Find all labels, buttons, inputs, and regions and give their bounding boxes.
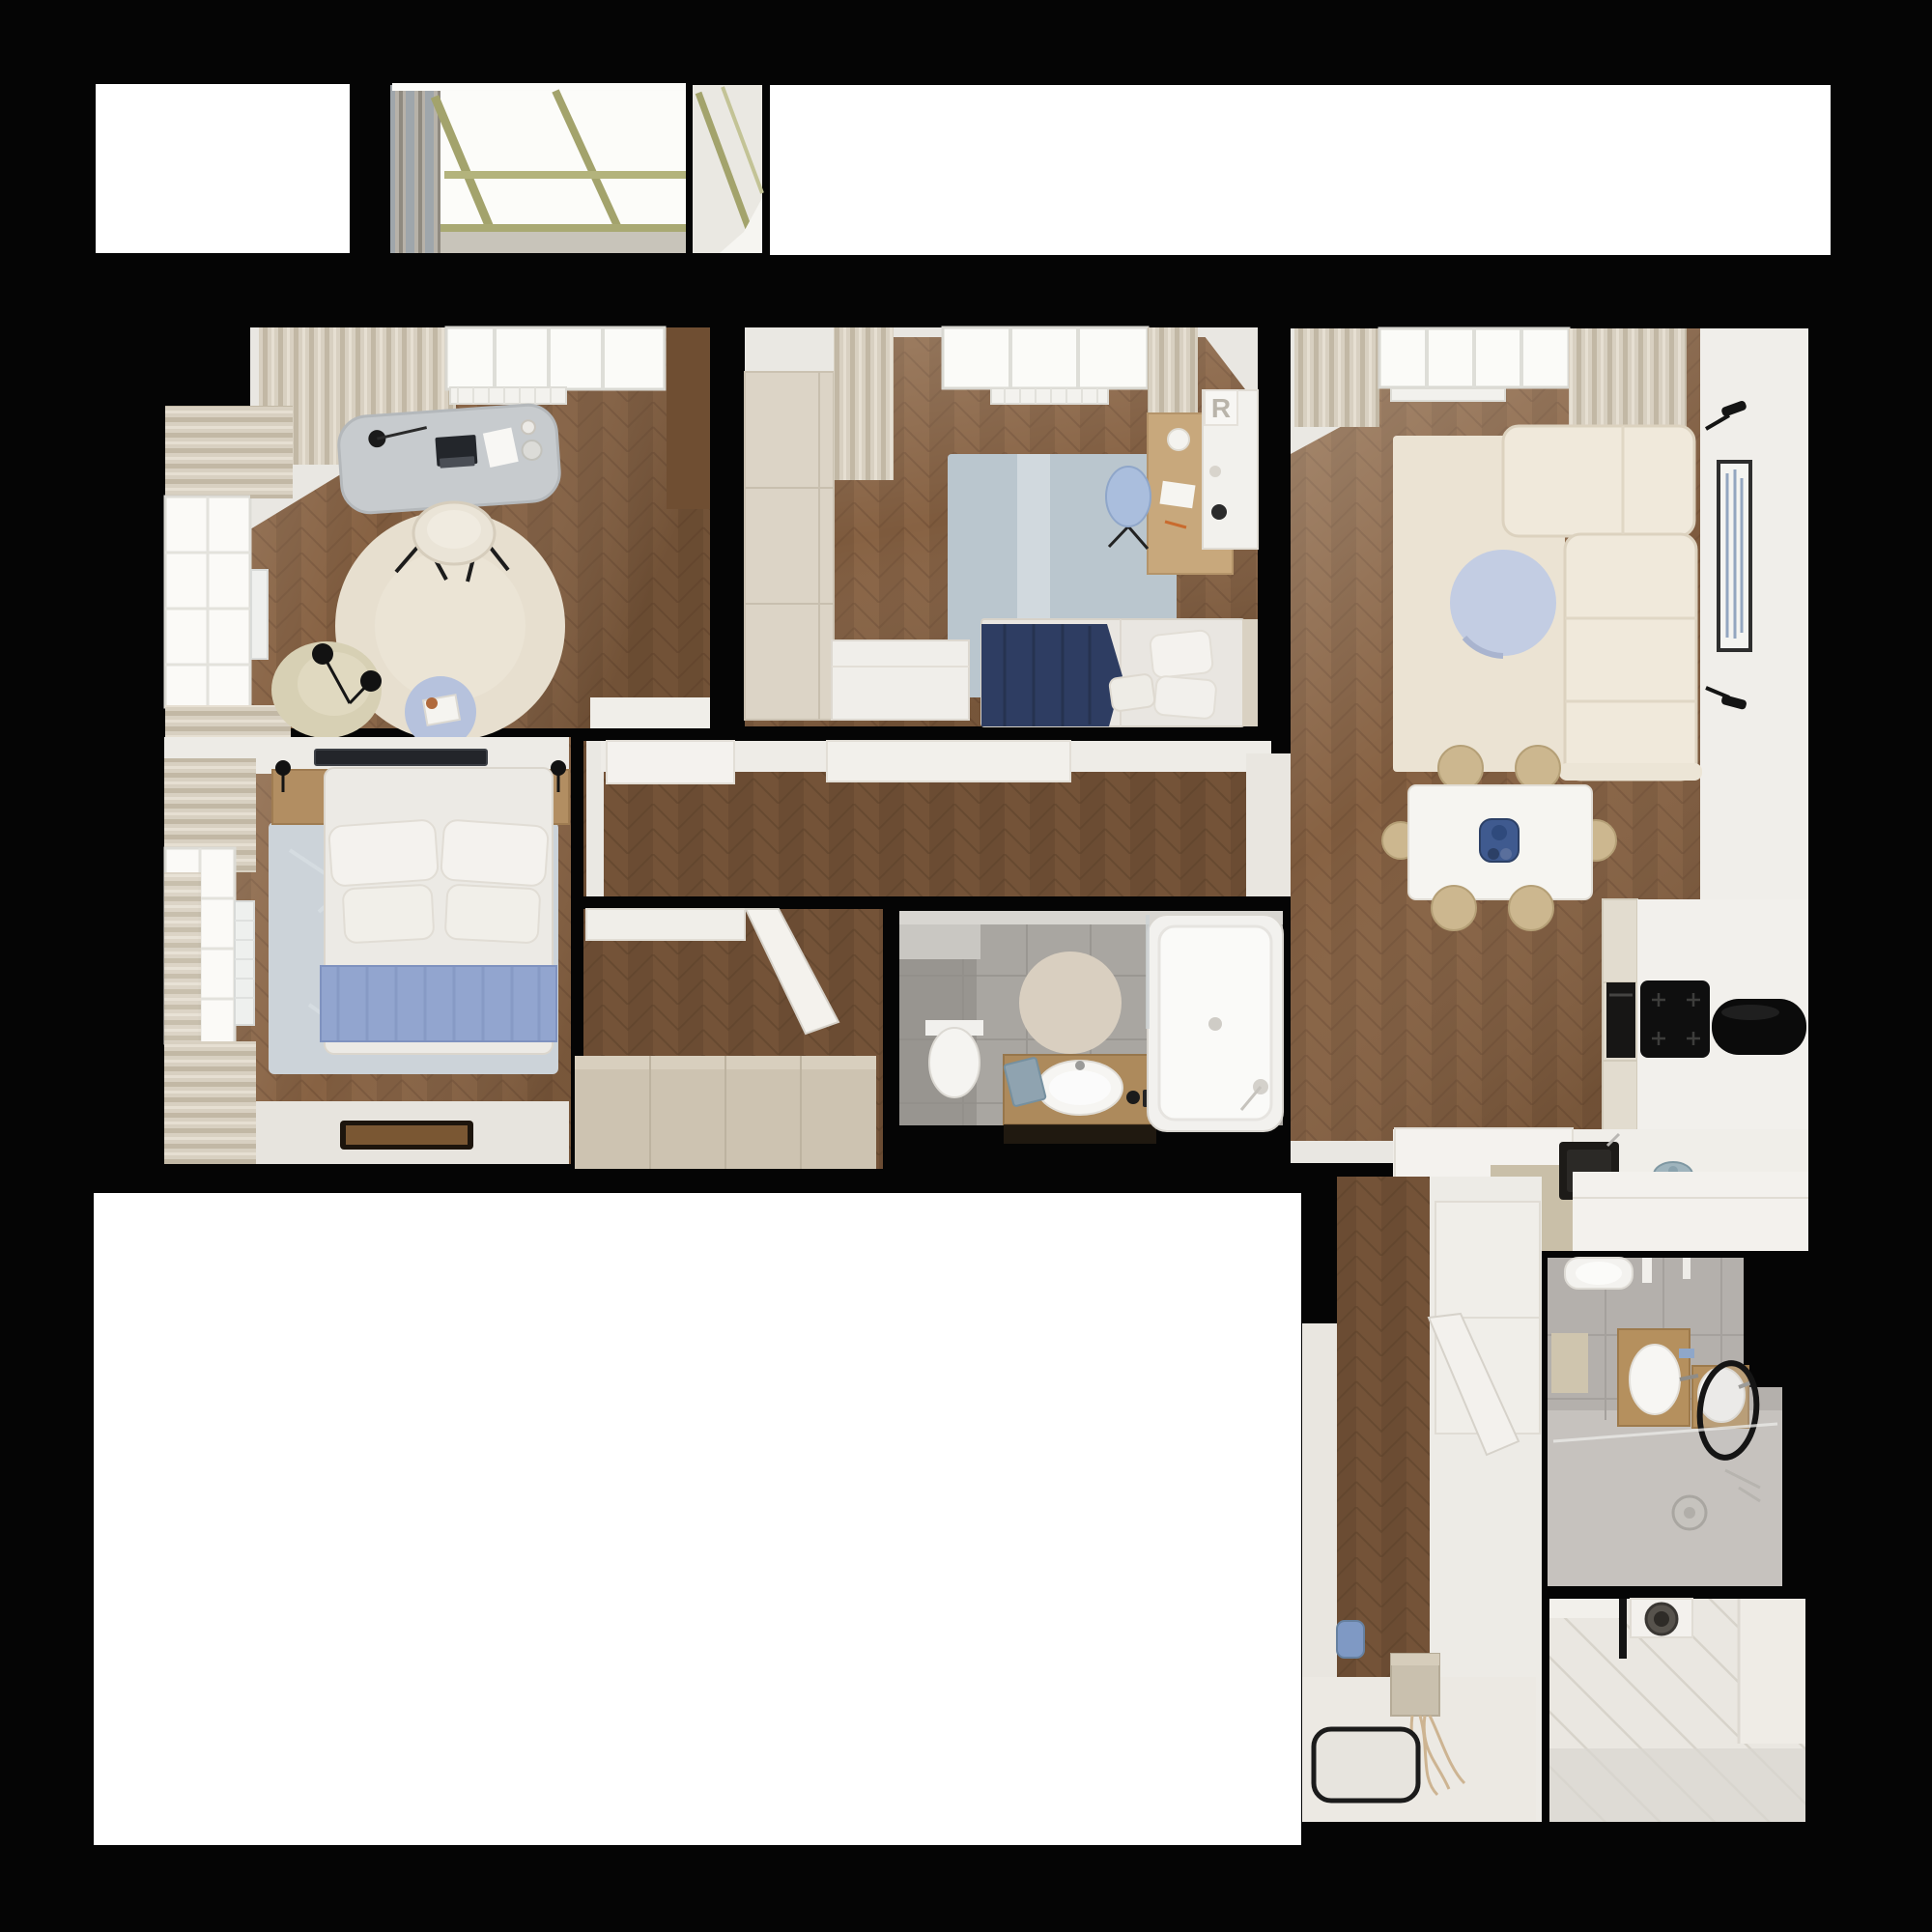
svg-text:R: R <box>1211 393 1231 423</box>
